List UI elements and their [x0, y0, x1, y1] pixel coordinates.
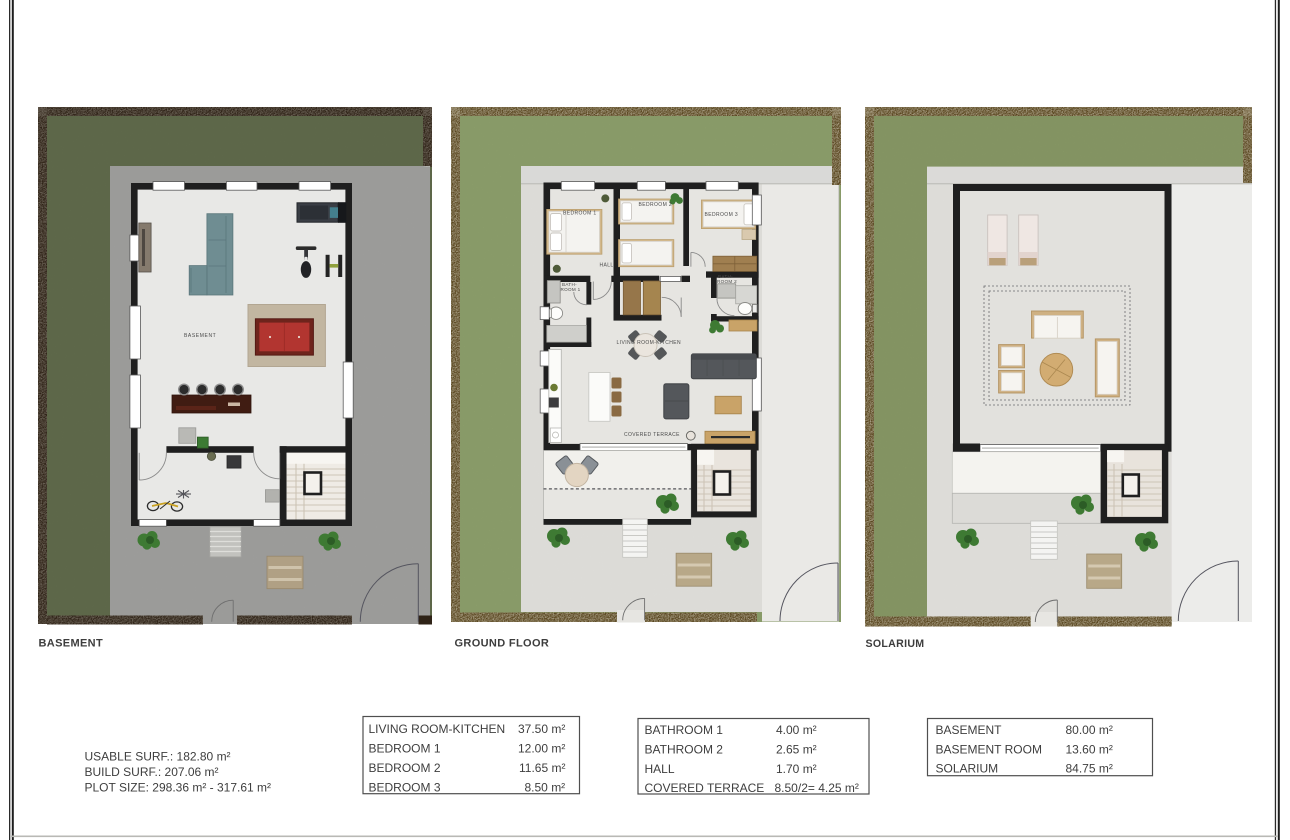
svg-text:SOLARIUM: SOLARIUM	[866, 638, 925, 650]
svg-text:HALL: HALL	[645, 762, 675, 776]
svg-text:8.50/2= 4.25 m²: 8.50/2= 4.25 m²	[775, 781, 859, 795]
svg-text:2.65 m²: 2.65 m²	[776, 743, 817, 757]
svg-text:80.00 m²: 80.00 m²	[1066, 723, 1113, 737]
svg-text:13.60 m²: 13.60 m²	[1066, 743, 1113, 757]
svg-text:ROOM 2: ROOM 2	[717, 279, 737, 284]
svg-text:4.00 m²: 4.00 m²	[776, 723, 817, 737]
svg-text:8.50 m²: 8.50 m²	[525, 780, 566, 794]
svg-text:BASEMENT ROOM: BASEMENT ROOM	[936, 743, 1042, 757]
svg-text:12.00 m²: 12.00 m²	[518, 741, 565, 755]
svg-text:BEDROOM 3: BEDROOM 3	[705, 212, 739, 218]
svg-text:BATHROOM 2: BATHROOM 2	[645, 743, 724, 757]
svg-text:BEDROOM 1: BEDROOM 1	[563, 210, 597, 216]
svg-text:BEDROOM 1: BEDROOM 1	[369, 741, 441, 755]
svg-text:BUILD SURF.: 207.06 m²: BUILD SURF.: 207.06 m²	[85, 765, 219, 779]
svg-text:SOLARIUM: SOLARIUM	[936, 762, 999, 776]
svg-text:BEDROOM 3: BEDROOM 3	[369, 780, 441, 794]
svg-text:BASEMENT: BASEMENT	[39, 638, 104, 650]
svg-text:BATHROOM 1: BATHROOM 1	[645, 723, 724, 737]
svg-text:BEDROOM 2: BEDROOM 2	[639, 202, 673, 208]
svg-text:COVERED TERRACE: COVERED TERRACE	[645, 781, 765, 795]
svg-text:BASEMENT: BASEMENT	[936, 723, 1003, 737]
svg-text:11.65 m²: 11.65 m²	[519, 761, 565, 775]
svg-text:ROOM 1: ROOM 1	[561, 287, 581, 292]
svg-text:USABLE SURF.: 182.80 m²: USABLE SURF.: 182.80 m²	[85, 750, 231, 764]
svg-text:84.75 m²: 84.75 m²	[1066, 762, 1113, 776]
svg-text:LIVING ROOM-KITCHEN: LIVING ROOM-KITCHEN	[617, 340, 682, 346]
svg-text:GROUND FLOOR: GROUND FLOOR	[455, 638, 550, 650]
svg-text:BASEMENT: BASEMENT	[184, 333, 216, 339]
svg-text:37.50 m²: 37.50 m²	[518, 722, 565, 736]
svg-text:HALL: HALL	[600, 263, 614, 269]
svg-text:1.70 m²: 1.70 m²	[776, 762, 817, 776]
svg-text:COVERED TERRACE: COVERED TERRACE	[624, 432, 680, 438]
svg-text:LIVING ROOM-KITCHEN: LIVING ROOM-KITCHEN	[369, 722, 506, 736]
svg-text:BEDROOM 2: BEDROOM 2	[369, 761, 441, 775]
svg-text:PLOT SIZE: 298.36 m² - 317.61: PLOT SIZE: 298.36 m² - 317.61 m²	[85, 781, 272, 795]
